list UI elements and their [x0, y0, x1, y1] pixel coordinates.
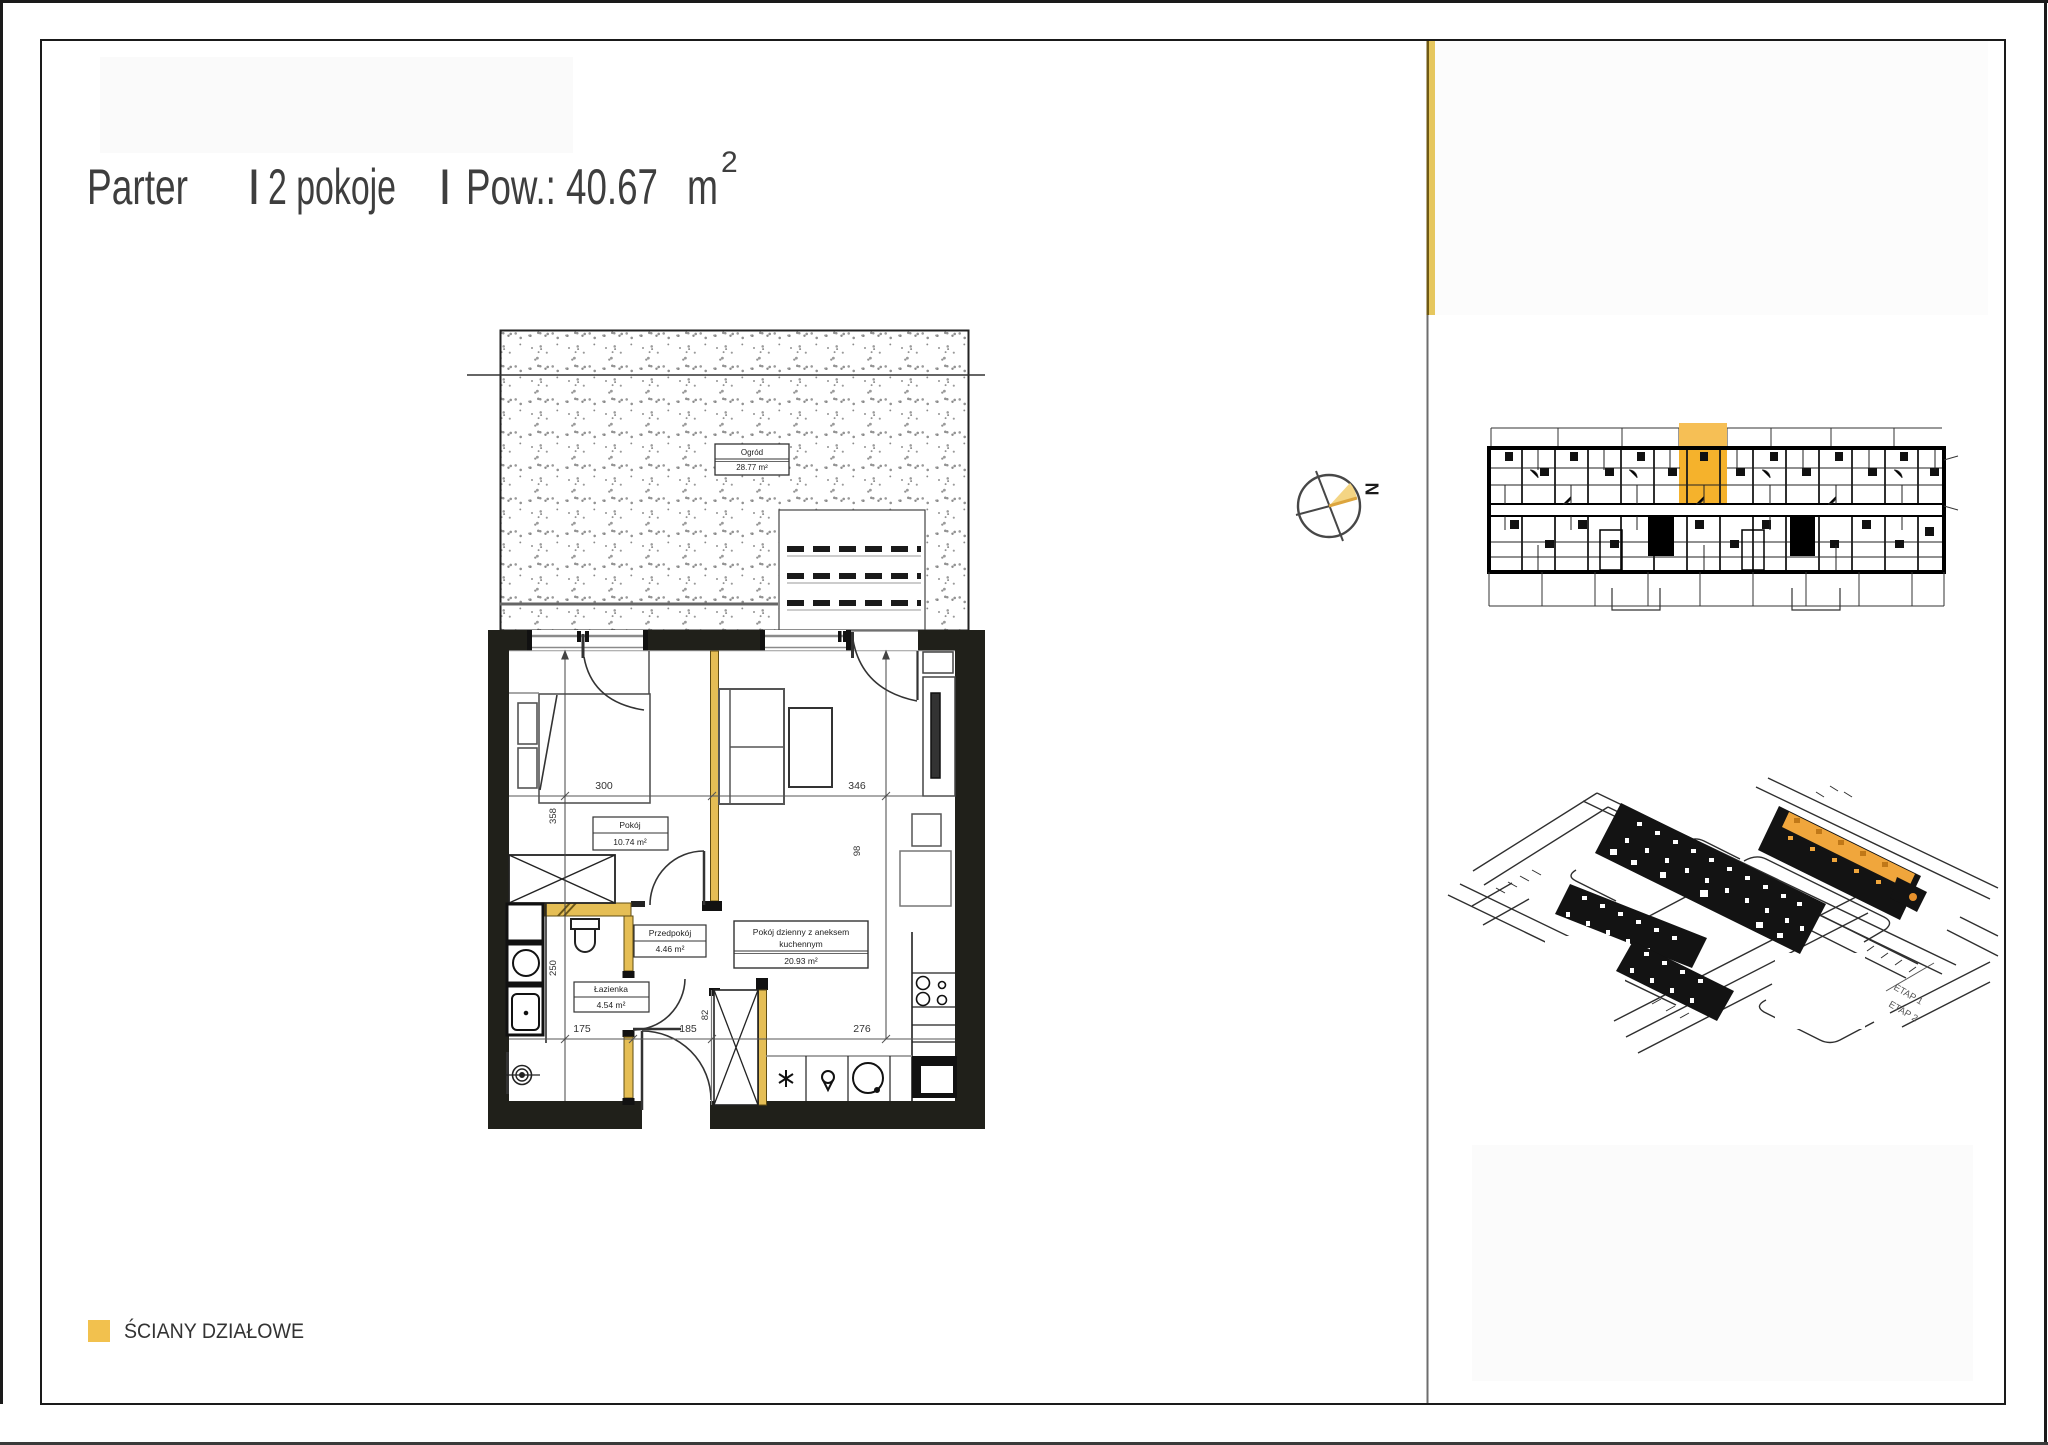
- svg-text:I: I: [247, 159, 261, 215]
- svg-text:2: 2: [721, 146, 738, 179]
- svg-text:Ogród: Ogród: [741, 448, 763, 457]
- svg-text:4.54 m²: 4.54 m²: [597, 1000, 626, 1010]
- svg-text:Pow.: 40.67: Pow.: 40.67: [466, 159, 658, 215]
- svg-text:Pokój dzienny z aneksem: Pokój dzienny z aneksem: [753, 927, 849, 937]
- svg-text:Parter: Parter: [87, 159, 188, 215]
- svg-text:300: 300: [595, 780, 613, 792]
- svg-text:276: 276: [853, 1023, 871, 1035]
- svg-text:Łazienka: Łazienka: [594, 984, 628, 994]
- svg-text:28.77 m²: 28.77 m²: [736, 463, 768, 472]
- svg-text:2 pokoje: 2 pokoje: [268, 159, 396, 215]
- svg-text:Przedpokój: Przedpokój: [649, 928, 692, 938]
- svg-text:ŚCIANY DZIAŁOWE: ŚCIANY DZIAŁOWE: [124, 1319, 304, 1343]
- svg-text:175: 175: [573, 1023, 591, 1035]
- svg-text:I: I: [438, 159, 452, 215]
- svg-text:kuchennym: kuchennym: [779, 939, 822, 949]
- svg-text:98: 98: [852, 846, 863, 857]
- svg-text:358: 358: [548, 808, 559, 824]
- svg-text:N: N: [1361, 483, 1381, 496]
- svg-text:4.46 m²: 4.46 m²: [656, 944, 685, 954]
- svg-text:20.93 m²: 20.93 m²: [784, 956, 818, 966]
- svg-text:82: 82: [700, 1010, 711, 1021]
- svg-text:250: 250: [548, 960, 559, 976]
- svg-text:Pokój: Pokój: [619, 820, 640, 830]
- svg-text:m: m: [687, 159, 718, 215]
- svg-text:185: 185: [679, 1023, 697, 1035]
- svg-text:10.74 m²: 10.74 m²: [613, 837, 647, 847]
- svg-text:346: 346: [848, 780, 866, 792]
